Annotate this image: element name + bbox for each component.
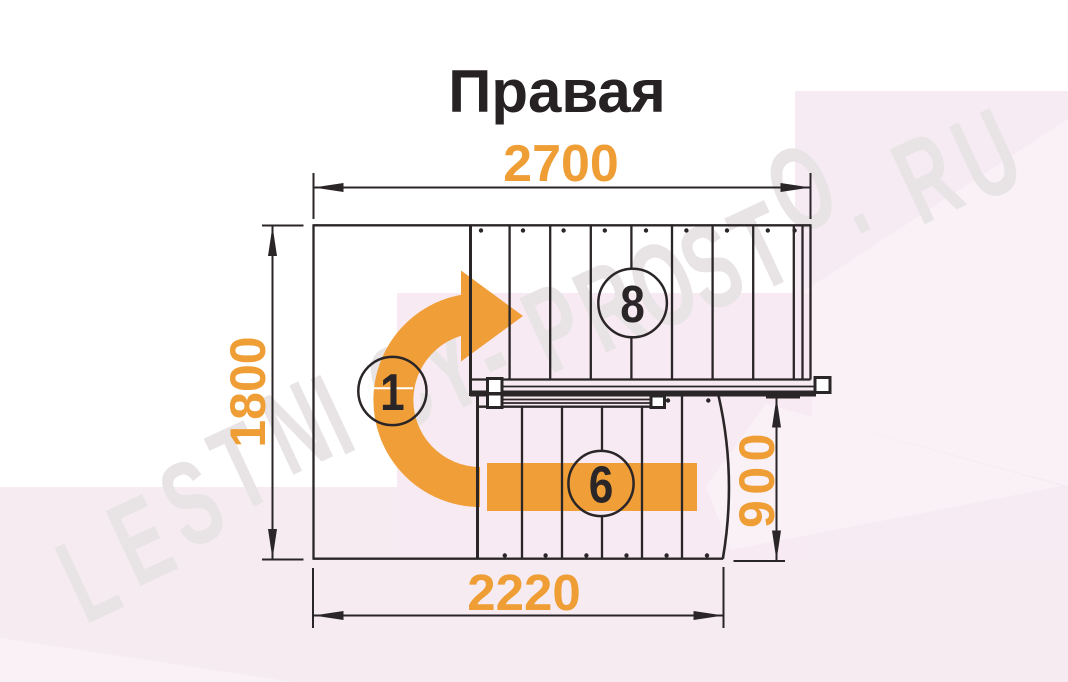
svg-text:Правая: Правая (448, 58, 666, 125)
svg-text:2220: 2220 (467, 564, 580, 621)
svg-text:1: 1 (380, 363, 405, 421)
svg-text:8: 8 (620, 275, 645, 333)
svg-text:6: 6 (589, 456, 614, 514)
svg-text:900: 900 (729, 428, 785, 528)
svg-text:2700: 2700 (503, 135, 619, 193)
svg-text:1800: 1800 (220, 336, 276, 447)
